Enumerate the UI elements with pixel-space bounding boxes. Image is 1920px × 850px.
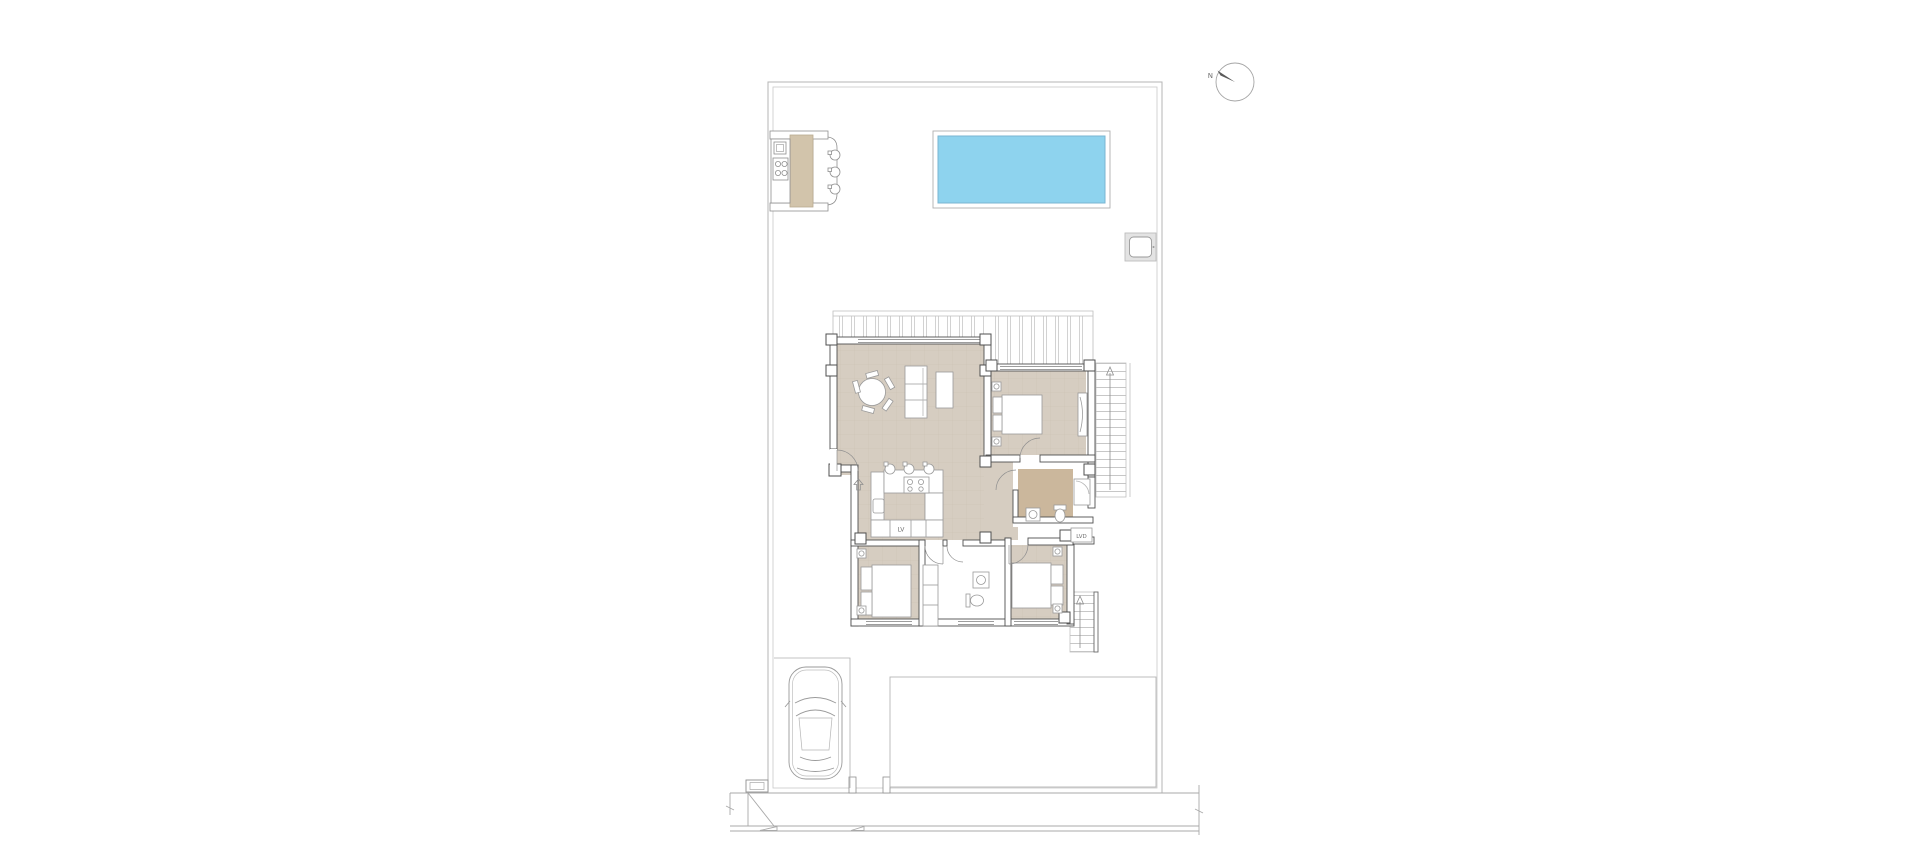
- sofa: [905, 366, 927, 418]
- stool-handle: [903, 462, 907, 466]
- stool-handle: [923, 462, 927, 466]
- sink-basin: [1029, 511, 1037, 519]
- equipment-box-latch: [1153, 246, 1155, 248]
- cooktop-frame: [904, 477, 929, 493]
- column: [1084, 360, 1095, 371]
- dining-table: [859, 379, 886, 406]
- outdoor-kitchen: [770, 131, 840, 211]
- toilet-bowl: [971, 595, 984, 606]
- column: [855, 533, 866, 544]
- cooktop: [904, 477, 929, 493]
- bedroom3-pillow: [1051, 565, 1063, 584]
- wall-bedroom3-east: [1067, 537, 1074, 624]
- laundry-closet: LVD: [1071, 528, 1092, 542]
- kitchen-sink: [873, 499, 884, 513]
- bbq-burner: [782, 161, 787, 166]
- stool-handle: [828, 151, 832, 155]
- burner: [908, 487, 912, 491]
- gate-pillar-box-inner: [750, 783, 764, 790]
- stairs-east-treads: [1096, 363, 1126, 497]
- north-label: N: [1208, 72, 1213, 80]
- column: [980, 456, 991, 467]
- stool-handle: [828, 185, 832, 189]
- dishwasher-label: LV: [898, 527, 906, 534]
- hall-wardrobe: [923, 565, 938, 626]
- kitchen-counter-east: [925, 493, 943, 520]
- wall-living-master: [984, 337, 991, 458]
- burner: [907, 479, 912, 484]
- equipment-box-inner: [1130, 237, 1152, 257]
- column: [1084, 464, 1095, 475]
- column: [1060, 530, 1071, 541]
- floor-plan-canvas: LVD: [0, 0, 1920, 850]
- gate-post-right: [883, 777, 890, 793]
- stairs-south-side-wall: [1094, 592, 1098, 652]
- master-bed-pillow: [993, 397, 1002, 413]
- bedroom2-pillow: [861, 567, 872, 590]
- pergola-slats-left: [838, 316, 986, 339]
- sink-basin: [977, 576, 986, 585]
- bbq-bar-top: [790, 135, 813, 207]
- wall-master-south-right: [1040, 455, 1095, 462]
- laundry-label: LVD: [1076, 534, 1086, 540]
- burner: [919, 487, 923, 491]
- bedroom3-bed-mattress: [1012, 563, 1051, 608]
- lamp: [994, 439, 999, 444]
- pool-water: [938, 136, 1105, 203]
- bbq-burner: [775, 161, 780, 166]
- site-plan-drawing: LVD: [0, 0, 1920, 850]
- bedroom3-pillow: [1051, 586, 1063, 605]
- wall-master-north: [986, 364, 1095, 371]
- lamp: [859, 551, 864, 556]
- coffee-table: [936, 372, 953, 408]
- stool-handle: [828, 168, 832, 172]
- wall-bath2-east: [1005, 538, 1011, 626]
- column: [826, 365, 837, 376]
- burner: [918, 479, 923, 484]
- lamp: [994, 384, 999, 389]
- swimming-pool: [933, 131, 1110, 208]
- lamp: [859, 608, 864, 613]
- master-bed-mattress: [1002, 395, 1042, 434]
- wall-south: [851, 619, 1074, 626]
- wall-west-upper: [830, 337, 837, 449]
- bbq-burner: [782, 170, 787, 175]
- terrace-slab: [890, 677, 1156, 787]
- column: [826, 334, 837, 345]
- column: [980, 532, 991, 543]
- column: [986, 360, 997, 371]
- exterior-stairs-east: [1096, 363, 1130, 497]
- toilet-tank: [966, 594, 970, 607]
- bbq-burner: [775, 170, 780, 175]
- wall-bath2-north-stub: [943, 540, 947, 546]
- stool-handle: [884, 462, 888, 466]
- lamp: [1055, 606, 1060, 611]
- pergola-slats-right: [993, 316, 1091, 366]
- bbq-sink-basin: [777, 145, 784, 152]
- bedroom2-bed-mattress: [872, 565, 911, 617]
- lamp: [1055, 549, 1060, 554]
- wall-living-north: [830, 337, 991, 344]
- toilet-bowl: [1055, 509, 1065, 522]
- pool-equipment-box: [1125, 233, 1156, 261]
- sofa-body: [905, 366, 927, 418]
- column: [980, 334, 991, 345]
- entrance-door-gap: [830, 449, 837, 469]
- master-bed-pillow: [993, 415, 1002, 431]
- kitchen-counter-south: [871, 520, 943, 537]
- column: [1059, 612, 1070, 623]
- wall-bath-south: [1013, 517, 1093, 523]
